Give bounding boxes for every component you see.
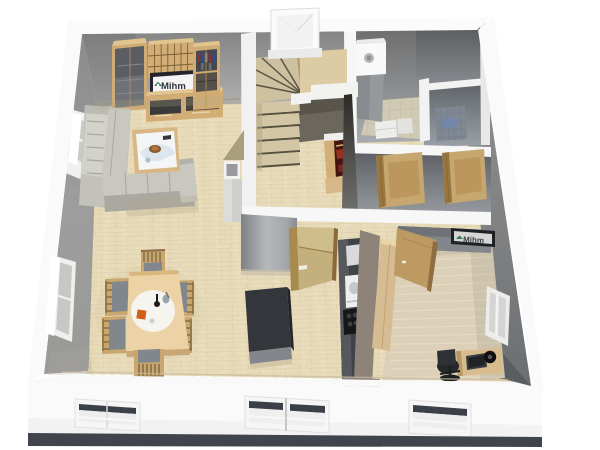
svg-text:Mihm: Mihm [463,235,484,245]
